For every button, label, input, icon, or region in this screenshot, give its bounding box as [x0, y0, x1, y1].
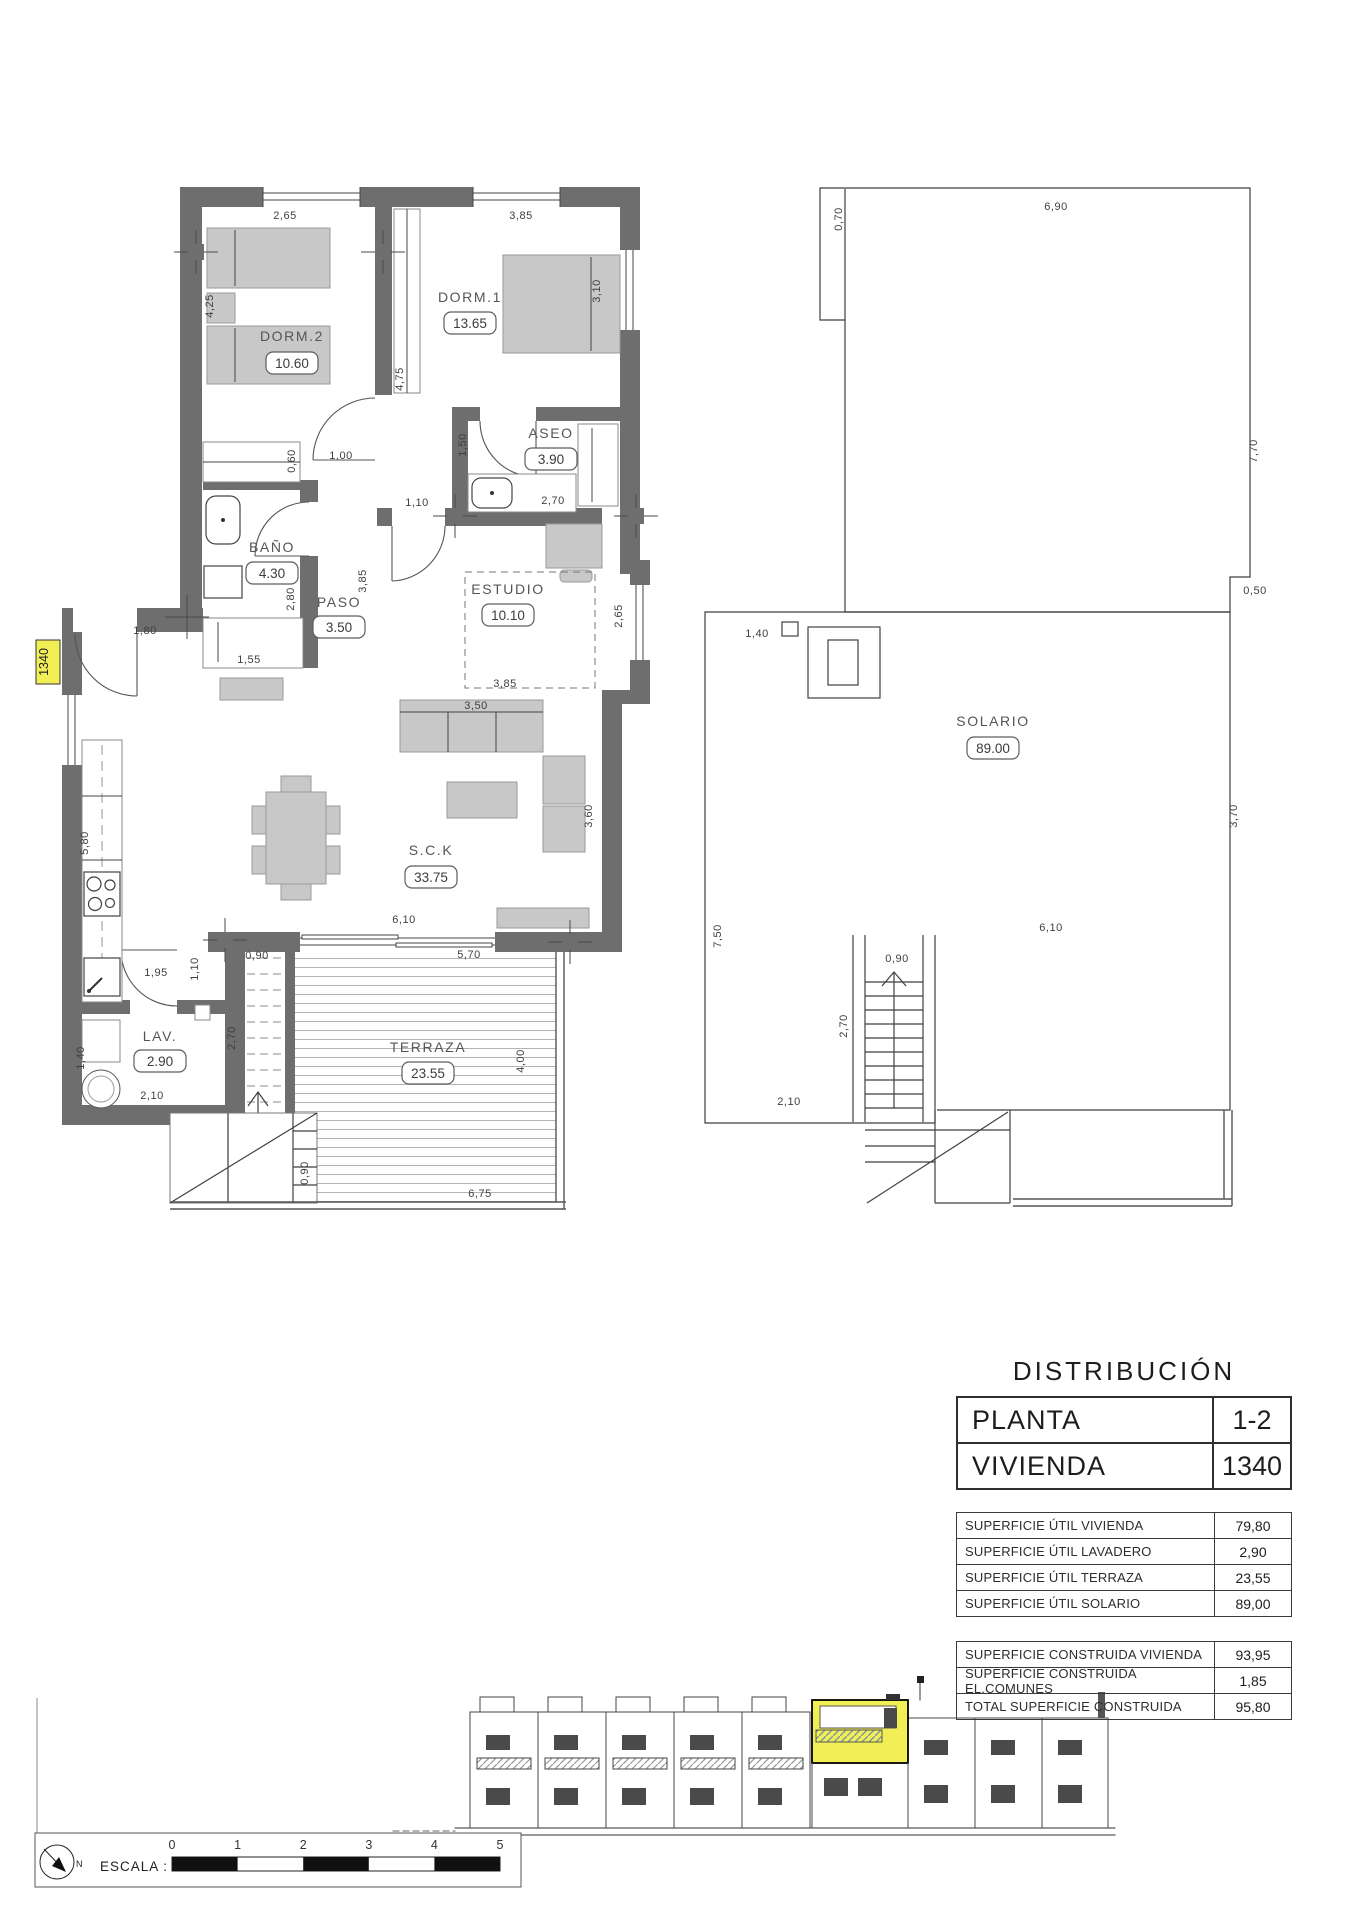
dim-label: 2,10: [140, 1090, 163, 1102]
dim-label: 1,55: [237, 654, 260, 666]
dim-label: 4,00: [515, 1049, 527, 1072]
table-row: SUPERFICIE CONSTRUIDA EL.COMUNES 1,85: [957, 1667, 1291, 1693]
row-label: SUPERFICIE ÚTIL TERRAZA: [957, 1565, 1214, 1590]
dim-label: 1,80: [133, 625, 156, 637]
dim-label: 6,90: [1044, 201, 1067, 213]
unit-tag-label: 1340: [37, 648, 51, 676]
dim-label: 0,70: [833, 207, 845, 230]
row-label: SUPERFICIE CONSTRUIDA EL.COMUNES: [957, 1668, 1214, 1693]
row-label: SUPERFICIE ÚTIL LAVADERO: [957, 1539, 1214, 1564]
planta-label: PLANTA: [958, 1398, 1212, 1442]
dim-label: 2,65: [613, 604, 625, 627]
dim-label: 6,75: [468, 1188, 491, 1200]
dim-label: 5,80: [79, 831, 91, 854]
superficie-construida-table: SUPERFICIE CONSTRUIDA VIVIENDA 93,95 SUP…: [956, 1641, 1292, 1720]
scale-label: ESCALA :: [100, 1859, 168, 1874]
dim-label: 1,95: [144, 967, 167, 979]
dim-label: 1,10: [405, 497, 428, 509]
dim-label: 1,40: [745, 628, 768, 640]
solario-stair: [851, 935, 1232, 1206]
solario-dimension-labels: 0,70 6,90 7,70 0,50 1,40 3,70 7,50 6,10 …: [712, 201, 1267, 1108]
room-name: LAV.: [143, 1028, 177, 1044]
dim-label: 3,70: [1228, 804, 1240, 827]
dim-label: 3,50: [464, 700, 487, 712]
row-value: 23,55: [1214, 1565, 1291, 1590]
dim-label: 3,10: [591, 279, 603, 302]
elevation-units: [477, 1697, 803, 1805]
dim-label: 3,85: [509, 210, 532, 222]
room-name: SOLARIO: [956, 713, 1029, 729]
dim-label: 2,10: [777, 1096, 800, 1108]
solario-plan: SOLARIO 89.00 0,70 6,90 7,70 0,50 1,40 3…: [705, 188, 1267, 1206]
table-row: SUPERFICIE ÚTIL LAVADERO 2,90: [957, 1538, 1291, 1564]
scale-tick: 5: [497, 1838, 504, 1852]
solario-lower: [705, 612, 1230, 1123]
vivienda-value: 1340: [1212, 1444, 1290, 1488]
room-area: 10.60: [275, 356, 309, 371]
dim-label: 2,70: [838, 1014, 850, 1037]
plan-sheet: 1340 DORM.2 10.60 DORM.1 13.65 ASEO 3.90…: [0, 0, 1356, 1920]
scale-tick: 4: [431, 1838, 438, 1852]
dim-label: 1,00: [329, 450, 352, 462]
solario-upper: [820, 188, 1250, 612]
row-value: 93,95: [1214, 1642, 1291, 1667]
scale-tick: 1: [234, 1838, 241, 1852]
room-name: S.C.K: [409, 842, 454, 858]
table-row: TOTAL SUPERFICIE CONSTRUIDA 95,80: [957, 1693, 1291, 1719]
distribution-panel: DISTRIBUCIÓN PLANTA 1-2 VIVIENDA 1340 SU…: [956, 1356, 1292, 1720]
dim-label: 2,70: [541, 495, 564, 507]
row-label: SUPERFICIE CONSTRUIDA VIVIENDA: [957, 1642, 1214, 1667]
room-area: 10.10: [491, 608, 525, 623]
dim-label: 0,90: [245, 950, 268, 962]
scale-tick: 3: [365, 1838, 372, 1852]
planta-value: 1-2: [1212, 1398, 1290, 1442]
table-row: VIVIENDA 1340: [958, 1442, 1290, 1488]
dim-label: 6,10: [392, 914, 415, 926]
highlighted-unit: [812, 1694, 908, 1828]
dim-label: 0,50: [1243, 585, 1266, 597]
dim-label: 1,40: [75, 1046, 87, 1069]
dim-label: 4,25: [204, 294, 216, 317]
room-area: 3.90: [538, 452, 564, 467]
dim-label: 7,50: [712, 924, 724, 947]
table-row: SUPERFICIE CONSTRUIDA VIVIENDA 93,95: [957, 1642, 1291, 1667]
dim-label: 2,80: [285, 587, 297, 610]
table-row: SUPERFICIE ÚTIL VIVIENDA 79,80: [957, 1513, 1291, 1538]
row-label: TOTAL SUPERFICIE CONSTRUIDA: [957, 1694, 1214, 1719]
vivienda-label: VIVIENDA: [958, 1444, 1212, 1488]
scale-tick: 2: [300, 1838, 307, 1852]
room-name: DORM.1: [438, 289, 502, 305]
dim-label: 0,60: [286, 449, 298, 472]
room-area: 33.75: [414, 870, 448, 885]
row-value: 79,80: [1214, 1513, 1291, 1538]
room-name: PASO: [317, 594, 361, 610]
distribution-title: DISTRIBUCIÓN: [956, 1356, 1292, 1387]
dim-label: 2,70: [226, 1026, 238, 1049]
room-area: 23.55: [411, 1066, 445, 1081]
dim-label: 4,75: [394, 367, 406, 390]
apartment-plan: 1340 DORM.2 10.60 DORM.1 13.65 ASEO 3.90…: [36, 187, 658, 1209]
room-name: ESTUDIO: [471, 581, 544, 597]
dim-label: 6,10: [1039, 922, 1062, 934]
unit-tag: 1340: [36, 640, 60, 684]
row-value: 95,80: [1214, 1694, 1291, 1719]
north-label: N: [76, 1859, 83, 1869]
table-row: PLANTA 1-2: [958, 1398, 1290, 1442]
room-area: 3.50: [326, 620, 352, 635]
row-label: SUPERFICIE ÚTIL VIVIENDA: [957, 1513, 1214, 1538]
room-name: TERRAZA: [390, 1039, 467, 1055]
dim-label: 3,85: [357, 569, 369, 592]
dim-label: 0,90: [299, 1161, 311, 1184]
dim-label: 1,10: [189, 957, 201, 980]
dim-label: 7,70: [1248, 439, 1260, 462]
room-name: BAÑO: [249, 539, 295, 555]
dim-label: 3,85: [493, 678, 516, 690]
table-row: SUPERFICIE ÚTIL SOLARIO 89,00: [957, 1590, 1291, 1616]
row-value: 1,85: [1214, 1668, 1291, 1693]
room-area: 2.90: [147, 1054, 173, 1069]
row-value: 2,90: [1214, 1539, 1291, 1564]
row-label: SUPERFICIE ÚTIL SOLARIO: [957, 1591, 1214, 1616]
planta-vivienda-table: PLANTA 1-2 VIVIENDA 1340: [956, 1396, 1292, 1490]
room-area: 13.65: [453, 316, 487, 331]
scale-tick: 0: [169, 1838, 176, 1852]
room-name: ASEO: [528, 425, 573, 441]
row-value: 89,00: [1214, 1591, 1291, 1616]
dim-label: 5,70: [457, 949, 480, 961]
dim-label: 0,90: [885, 953, 908, 965]
superficie-util-table: SUPERFICIE ÚTIL VIVIENDA 79,80 SUPERFICI…: [956, 1512, 1292, 1617]
dim-label: 2,65: [273, 210, 296, 222]
dim-label: 1,50: [457, 433, 469, 456]
title-strip: N ESCALA : 0 1 2 3 4 5: [35, 1698, 521, 1887]
table-row: SUPERFICIE ÚTIL TERRAZA 23,55: [957, 1564, 1291, 1590]
room-area: 4.30: [259, 566, 285, 581]
dim-label: 3,60: [583, 804, 595, 827]
room-area: 89.00: [976, 741, 1010, 756]
room-name: DORM.2: [260, 328, 324, 344]
